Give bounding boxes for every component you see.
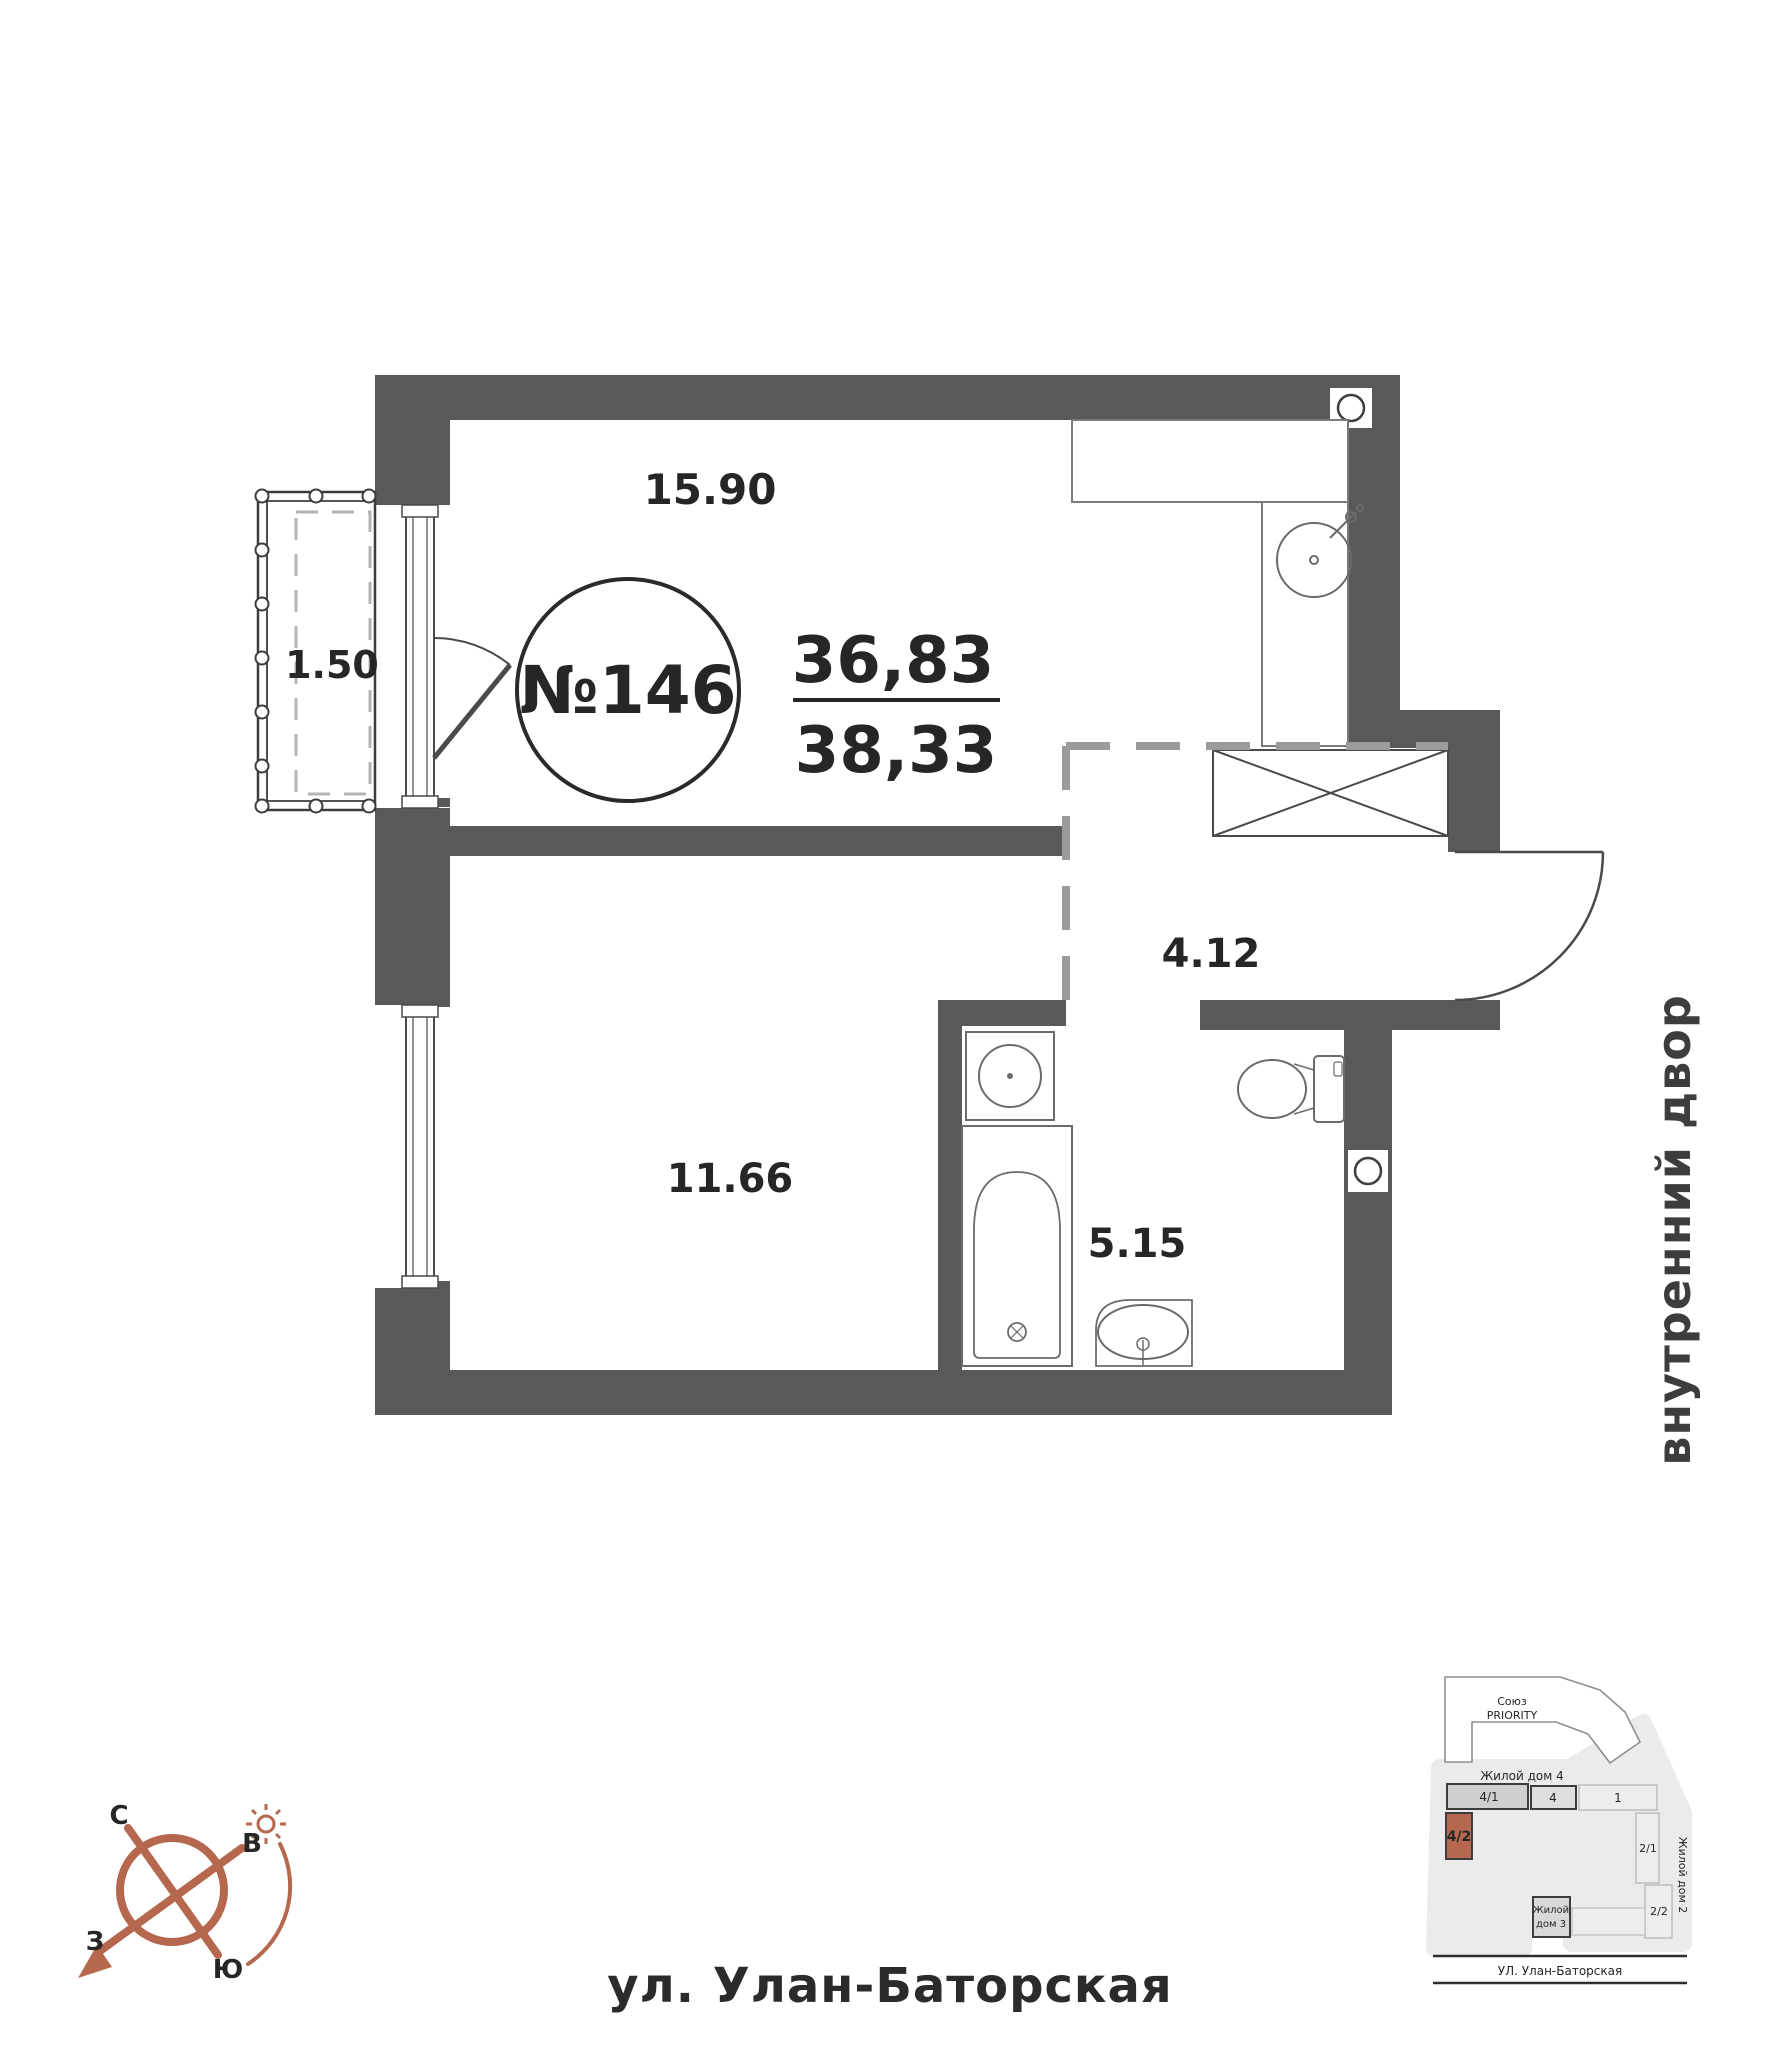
entrance-door-icon (1455, 852, 1603, 1000)
site-house3-label-1: Жилой (1533, 1905, 1569, 1916)
ventilation-shaft-icon (1213, 750, 1448, 836)
street-label: ул. Улан-Баторская (607, 1958, 1172, 2014)
wall-top (375, 375, 1400, 420)
site-block-2-2-label: 2/2 (1650, 1905, 1668, 1918)
toilet-icon (1238, 1056, 1344, 1122)
wall-interior-rooms (450, 826, 1066, 856)
wall-bottom (375, 1370, 1392, 1415)
balcony-window-icon (402, 505, 438, 808)
site-block-2-1-label: 2/1 (1639, 1842, 1657, 1855)
site-block-strip (1572, 1908, 1645, 1935)
bathroom-sink-icon (1096, 1300, 1192, 1366)
site-complex-outline (1445, 1677, 1640, 1763)
kitchen-counter (1072, 420, 1348, 746)
room-area-bedroom: 11.66 (667, 1156, 794, 1202)
apartment-number-badge: №146 (517, 579, 739, 801)
wall-left-middle (375, 808, 450, 1005)
site-complex-name-2: PRIORITY (1487, 1709, 1538, 1722)
washing-machine-icon (966, 1032, 1054, 1120)
compass-west-label: З (86, 1927, 104, 1957)
room-area-hallway: 4.12 (1162, 931, 1261, 977)
site-block-4-label: 4 (1549, 1791, 1557, 1805)
wall-right-lower (1344, 1030, 1392, 1415)
bedroom-window-icon (402, 1005, 438, 1288)
area-total-value: 38,33 (795, 714, 997, 788)
courtyard-label: внутренний двор (1647, 994, 1701, 1466)
apartment-number: №146 (519, 652, 736, 729)
balcony-door-swing (434, 638, 510, 758)
compass-sun-arc (248, 1844, 290, 1964)
room-area-balcony: 1.50 (285, 643, 379, 687)
wall-bath-top-left (938, 1000, 1066, 1026)
compass-north-label: С (109, 1801, 128, 1831)
compass: С В З Ю (78, 1801, 290, 1985)
site-house3-block (1533, 1897, 1570, 1937)
site-street-label: УЛ. Улан-Баторская (1498, 1964, 1622, 1978)
site-plan: Союз PRIORITY Жилой дом 4 4/1 4 1 4/2 2/… (1433, 1677, 1689, 1983)
site-house2-label: Жилой дом 2 (1676, 1837, 1689, 1914)
site-block-4-1-label: 4/1 (1479, 1790, 1498, 1804)
area-fraction: 36,83 38,33 (792, 624, 1000, 788)
wall-bath-left (938, 1000, 962, 1415)
room-area-living-kitchen: 15.90 (644, 465, 777, 514)
site-block-4-2-label: 4/2 (1447, 1829, 1472, 1845)
site-house4-label: Жилой дом 4 (1480, 1769, 1564, 1783)
wall-entry-side (1448, 748, 1500, 852)
wall-right-upper (1348, 375, 1400, 746)
compass-south-label: Ю (213, 1955, 244, 1985)
riser-circle-icon (1338, 395, 1364, 421)
compass-east-label: В (242, 1829, 262, 1859)
floor-plan-page: №146 36,83 38,33 15.90 1.50 11.66 4.12 5… (0, 0, 1773, 2068)
wall-left-upper (375, 375, 450, 505)
site-house3-label-2: дом 3 (1536, 1919, 1566, 1930)
site-complex-name-1: Союз (1497, 1695, 1527, 1708)
site-block-1-label: 1 (1614, 1791, 1622, 1805)
riser-circle-icon (1355, 1158, 1381, 1184)
area-living-value: 36,83 (792, 624, 994, 698)
bathtub-icon (962, 1126, 1072, 1366)
room-area-bathroom: 5.15 (1088, 1221, 1187, 1267)
wall-bath-top-right (1200, 1000, 1500, 1030)
floor-plan-canvas: №146 36,83 38,33 15.90 1.50 11.66 4.12 5… (0, 0, 1773, 2068)
